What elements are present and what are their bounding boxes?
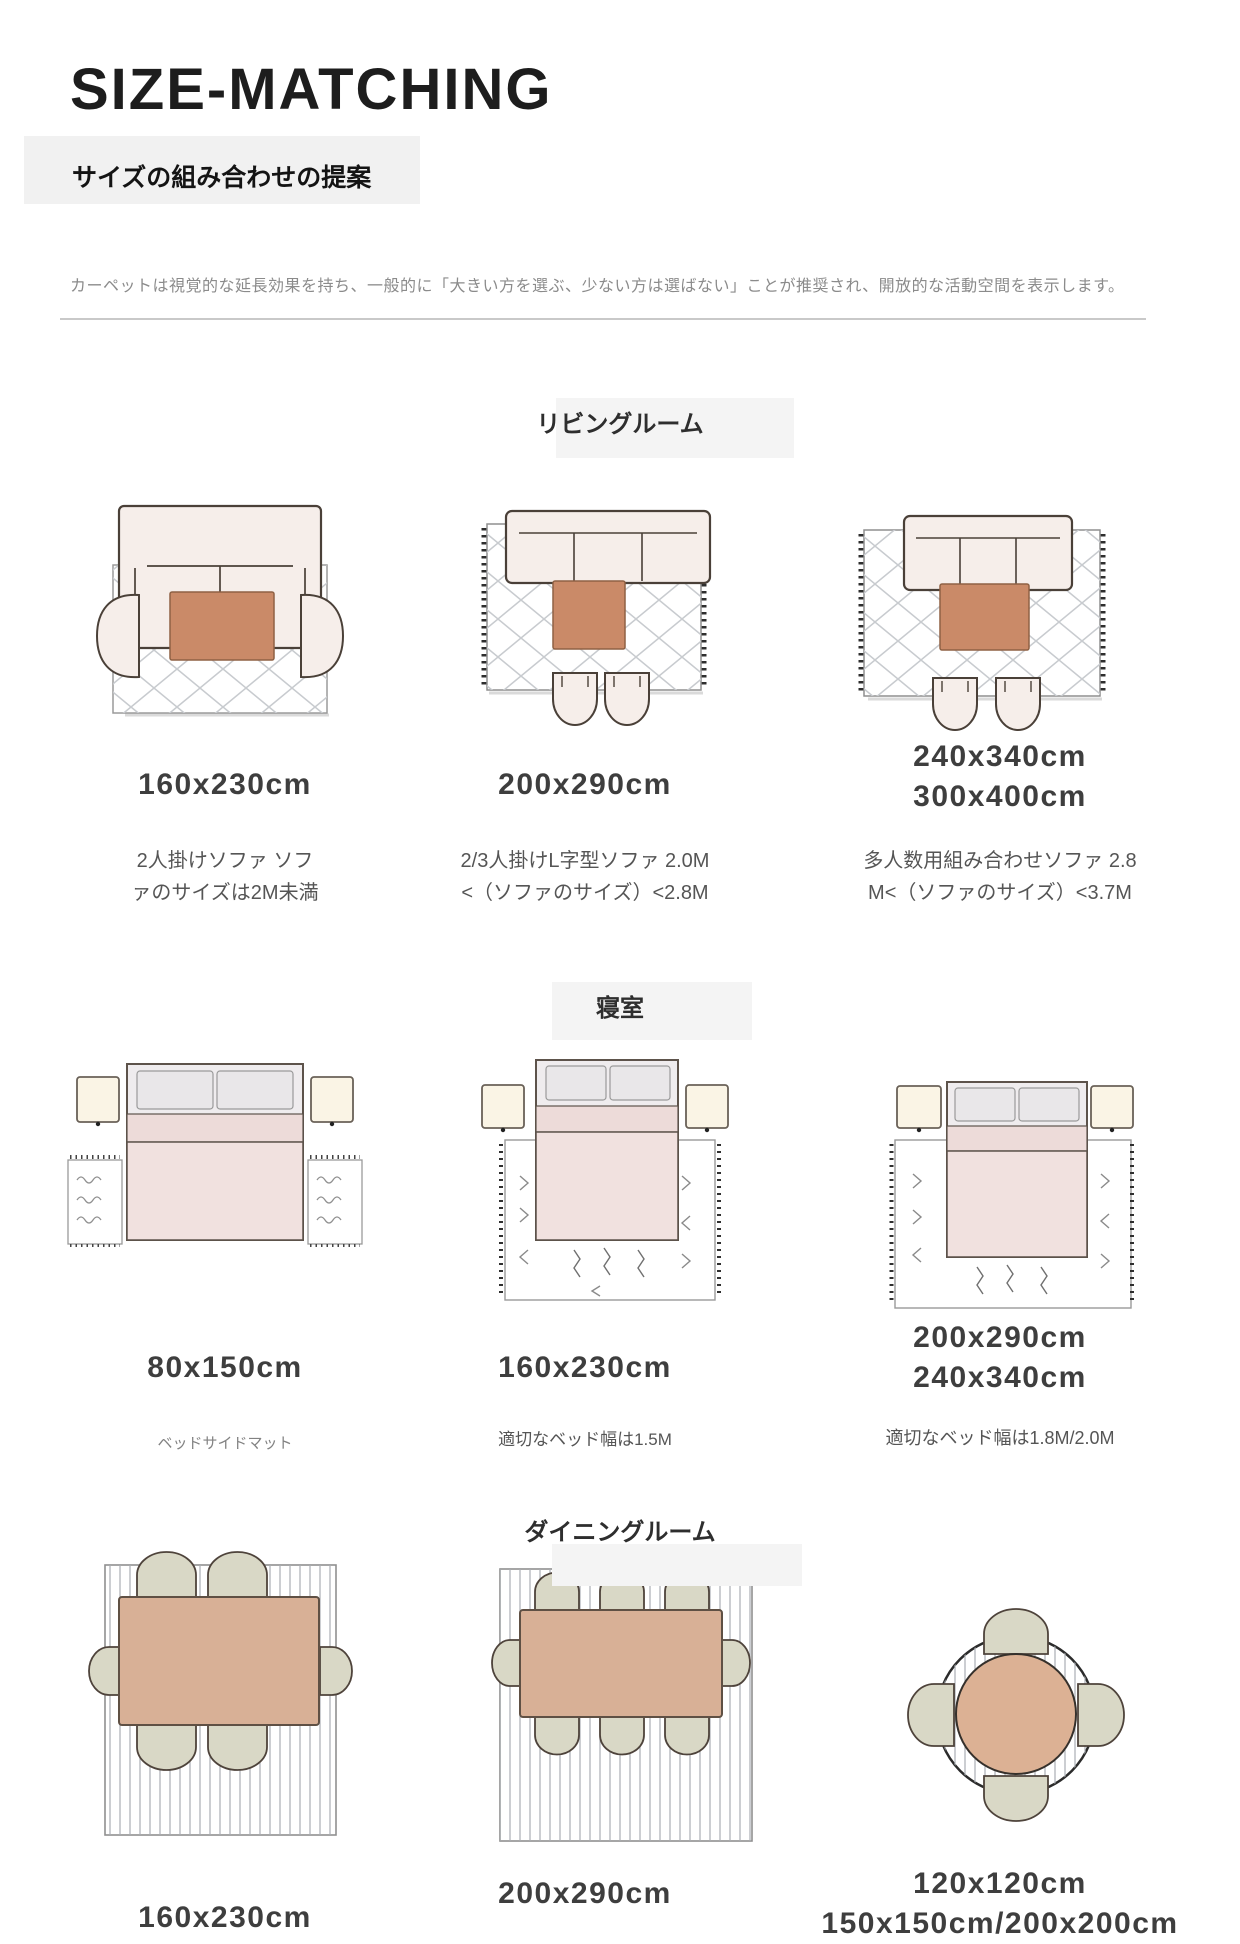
size-label-line: 200x290cm [420,1874,750,1914]
dining-chair [722,1640,750,1686]
dining-chair [137,1723,196,1770]
size-label-bedroom-3: 200x290cm 240x340cm [800,1318,1200,1398]
dining-round-rug-120x120-illustration [890,1592,1142,1842]
dining-chair [984,1776,1048,1821]
description-line: 適切なベッド幅は1.5M [420,1424,750,1456]
blanket-fold [536,1106,678,1132]
pillow [955,1088,1015,1121]
size-label-line: 150x150cm/200x200cm [800,1904,1200,1944]
dining-chair [89,1647,121,1695]
size-label-dining-2: 200x290cm [420,1874,750,1914]
size-label-dining-1: 160x230cm [60,1898,390,1938]
size-label-line: 80x150cm [60,1348,390,1388]
dining-chair [492,1640,520,1686]
section-heading-bedroom: 寝室 [0,988,1240,1023]
dining-chair [320,1647,352,1695]
dining-rug-160x230-illustration [85,1545,355,1842]
dining-chair [665,1713,709,1755]
size-label-line: 200x290cm [800,1318,1200,1358]
dining-rug-200x290-illustration [475,1550,755,1847]
dining-chair [600,1713,644,1755]
left-armchair [97,595,139,677]
size-label-line: 120x120cm [800,1864,1200,1904]
dining-chair [535,1713,579,1755]
ottoman [605,673,649,725]
left-lamp [482,1085,524,1132]
dining-table [520,1610,722,1717]
left-bedside-mat [68,1157,122,1246]
ottoman [553,673,597,725]
dining-chair [1078,1684,1124,1746]
description-line: 2人掛けソファ ソフ [60,845,390,877]
coffee-table [553,581,625,649]
ottoman [933,678,977,730]
size-label-line: 160x230cm [60,765,390,805]
item-description-living-2: 2/3人掛けL字型ソファ 2.0M <（ソファのサイズ）<2.8M [410,845,760,909]
size-label-line: 200x290cm [420,765,750,805]
blanket-fold [947,1126,1087,1151]
divider-rule [60,318,1146,320]
description-line: <（ソファのサイズ）<2.8M [410,877,760,909]
living-rug-240x340-illustration [852,508,1112,740]
dining-chair [984,1609,1048,1654]
coffee-table [940,584,1029,650]
pillow [610,1066,670,1100]
description-line: 2/3人掛けL字型ソファ 2.0M [410,845,760,877]
blanket-fold [127,1114,303,1142]
bed [536,1060,678,1240]
bedroom-rug-160x230-illustration [470,1058,740,1308]
item-description-living-3: 多人数用組み合わせソファ 2.8 M<（ソファのサイズ）<3.7M [790,845,1210,909]
right-lamp [686,1085,728,1132]
right-lamp [1091,1086,1133,1132]
item-description-bedroom-1: ベッドサイドマット [60,1428,390,1460]
size-label-bedroom-1: 80x150cm [60,1348,390,1388]
size-label-line: 160x230cm [420,1348,750,1388]
pillow [546,1066,606,1100]
size-label-living-3: 240x340cm 300x400cm [800,737,1200,817]
sofa [904,516,1072,590]
description-line: ァのサイズは2M未満 [60,877,390,909]
dining-heading-highlight [552,1544,802,1586]
size-label-line: 160x230cm [60,1898,390,1938]
page-subtitle: サイズの組み合わせの提案 [72,158,371,194]
left-lamp [897,1086,941,1132]
size-label-dining-3: 120x120cm 150x150cm/200x200cm [800,1864,1200,1944]
description-line: M<（ソファのサイズ）<3.7M [790,877,1210,909]
coffee-table [170,592,274,660]
right-lamp [311,1077,353,1126]
bed [127,1064,303,1240]
round-dining-table [956,1654,1076,1774]
ottoman [996,678,1040,730]
bed [947,1082,1087,1257]
size-label-living-1: 160x230cm [60,765,390,805]
bedroom-rug-200x290-illustration [885,1062,1135,1312]
pillow [1019,1088,1079,1121]
dining-chair [208,1552,267,1599]
dining-table [119,1597,319,1725]
right-bedside-mat [308,1157,362,1246]
section-heading-living-room: リビングルーム [0,404,1240,439]
blanket [127,1142,303,1240]
sofa [506,511,710,583]
page-title: SIZE-MATCHING [70,56,552,123]
size-label-bedroom-2: 160x230cm [420,1348,750,1388]
right-armchair [301,595,343,677]
dining-chair [908,1684,954,1746]
blanket [536,1132,678,1240]
dining-chair [137,1552,196,1599]
size-label-line: 240x340cm [800,1358,1200,1398]
pillow [137,1071,213,1109]
size-label-line: 240x340cm [800,737,1200,777]
section-heading-dining-room: ダイニングルーム [0,1512,1240,1547]
page-description: カーペットは視覚的な延長効果を持ち、一般的に「大きい方を選ぶ、少ない方は選ばない… [70,272,1150,296]
size-label-line: 300x400cm [800,777,1200,817]
blanket [947,1151,1087,1257]
size-matching-guide: SIZE-MATCHING サイズの組み合わせの提案 カーペットは視覚的な延長効… [0,0,1240,1920]
description-line: ベッドサイドマット [60,1428,390,1460]
item-description-bedroom-3: 適切なベッド幅は1.8M/2.0M [790,1422,1210,1454]
living-rug-200x290-illustration [475,505,715,735]
living-rug-160x230-illustration [85,498,355,723]
size-label-living-2: 200x290cm [420,765,750,805]
item-description-bedroom-2: 適切なベッド幅は1.5M [420,1424,750,1456]
bedroom-mats-80x150-illustration [65,1062,365,1247]
left-lamp [77,1077,119,1126]
item-description-living-1: 2人掛けソファ ソフ ァのサイズは2M未満 [60,845,390,909]
description-line: 多人数用組み合わせソファ 2.8 [790,845,1210,877]
dining-chair [208,1723,267,1770]
description-line: 適切なベッド幅は1.8M/2.0M [790,1422,1210,1454]
pillow [217,1071,293,1109]
